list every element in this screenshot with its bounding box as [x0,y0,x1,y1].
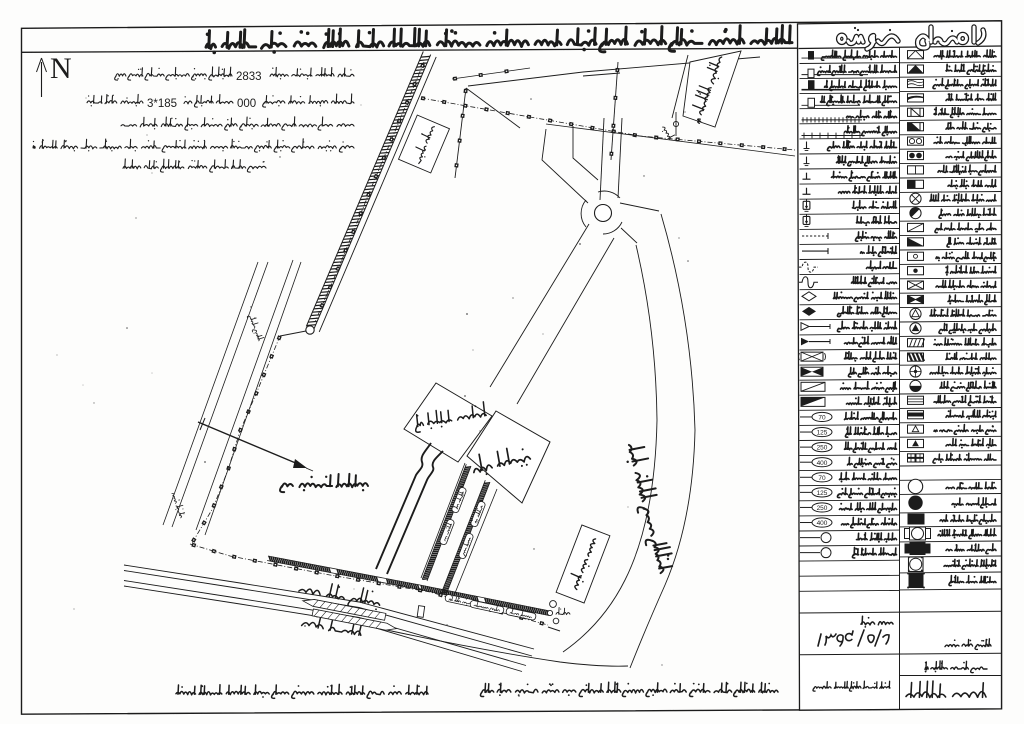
svg-text:250: 250 [817,505,828,512]
svg-text:125: 125 [817,430,828,437]
svg-text:70: 70 [818,415,826,422]
svg-text:70: 70 [818,475,826,482]
svg-text:000: 000 [237,98,256,110]
svg-text:3*185: 3*185 [147,98,177,110]
svg-text:2833: 2833 [236,71,262,83]
svg-text:250: 250 [817,445,828,452]
svg-text:125: 125 [817,490,828,497]
svg-text:400: 400 [817,460,828,467]
svg-text:400: 400 [817,520,828,527]
svg-text:N: N [50,52,72,85]
